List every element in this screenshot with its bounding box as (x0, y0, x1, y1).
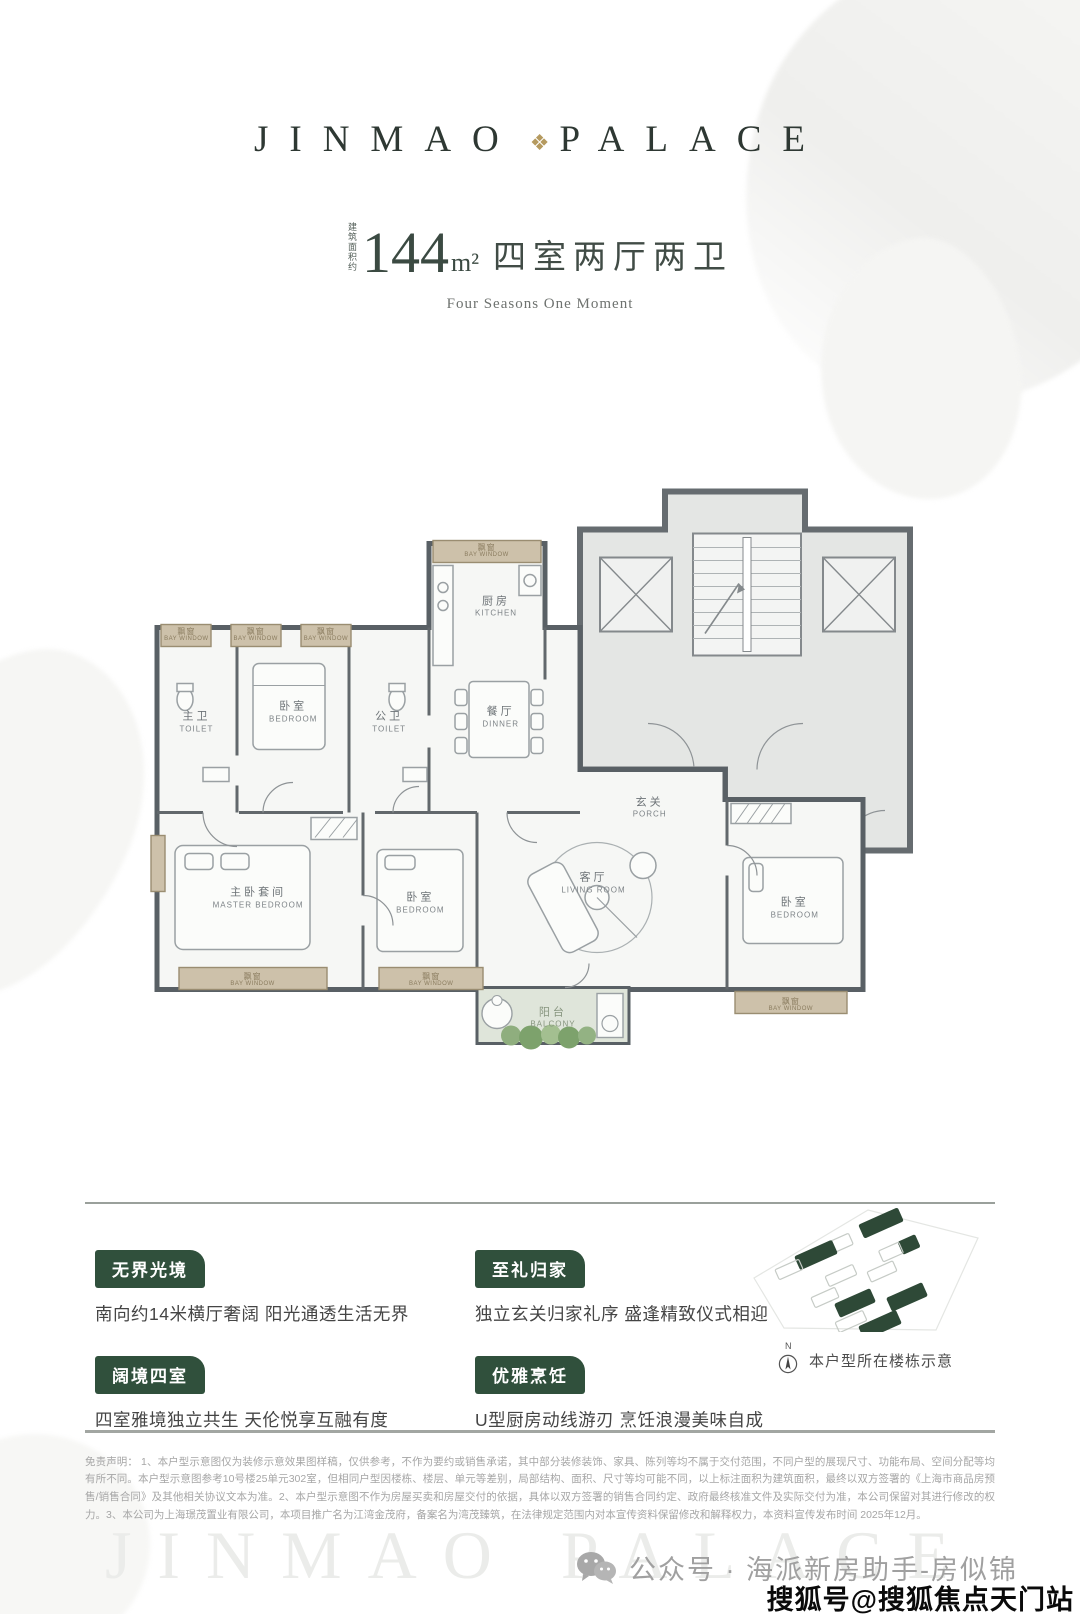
room-label-dinner: 餐厅DINNER (482, 706, 519, 729)
room-label-kitchen: 厨房KITCHEN (475, 595, 517, 618)
room-label-bay-window: 飘窗BAY WINDOW (409, 972, 453, 988)
area-prefix: 建筑面积约 (347, 222, 356, 272)
brand-left: JINMAO (254, 119, 520, 160)
compass-letter: N (785, 1341, 793, 1351)
site-blocks (775, 1208, 927, 1332)
site-caption: 本户型所在楼栋示意 (809, 1350, 953, 1371)
sohu-watermark: 搜狐号@搜狐焦点天门站 (767, 1578, 1074, 1614)
room-label-bay-window: 飘窗BAY WINDOW (464, 543, 508, 559)
room-label-bay-window: 飘窗BAY WINDOW (230, 972, 274, 988)
wechat-icon (575, 1550, 617, 1586)
site-caption-row: N 本户型所在楼栋示意 (740, 1343, 990, 1377)
feature-item: 无界光境 南向约14米横厅奢阔 阳光通透生活无界 (95, 1250, 475, 1326)
room-label-bedroom: 卧室BEDROOM (396, 892, 444, 915)
feature-desc: U型厨房动线游刃 烹饪浪漫美味自成 (475, 1407, 735, 1432)
subtitle: Four Seasons One Moment (0, 296, 1080, 313)
room-label-bay-window: 飘窗BAY WINDOW (164, 627, 208, 643)
room-label-toilet: 公卫TOILET (372, 711, 406, 734)
room-label-bedroom: 卧室BEDROOM (269, 701, 317, 724)
feature-tag: 无界光境 (95, 1250, 205, 1288)
brand-right: PALACE (560, 119, 827, 160)
feature-desc: 南向约14米横厅奢阔 阳光通透生活无界 (95, 1301, 475, 1326)
floor-plan-labels: 飘窗BAY WINDOW飘窗BAY WINDOW飘窗BAY WINDOW飘窗BA… (145, 466, 925, 1054)
divider-bottom (85, 1430, 995, 1433)
room-label-bay-window: 飘窗BAY WINDOW (769, 997, 813, 1013)
room-label-porch: 玄关PORCH (633, 796, 667, 819)
room-label-balcony: 阳台BALCONY (530, 1006, 575, 1029)
site-map: N 本户型所在楼栋示意 (740, 1204, 990, 1374)
layout-text: 四室两厅两卫 (493, 230, 733, 278)
disclaimer-text: 免责声明： 1、本户型示意图仅为装修示意效果图样稿，仅供参考，不作为要约或销售承… (85, 1454, 995, 1525)
feature-tag: 优雅烹饪 (475, 1356, 585, 1394)
site-map-svg (740, 1204, 990, 1332)
feature-tag: 阔境四室 (95, 1356, 205, 1394)
brand-emblem-icon: ❖ (530, 130, 550, 155)
feature-tag: 至礼归家 (475, 1250, 585, 1288)
page: JINMAO❖PALACE 建筑面积约 144 m² 四室两厅两卫 Four S… (0, 0, 1080, 1614)
room-label-master-bedroom: 主卧套间MASTER BEDROOM (213, 887, 304, 910)
compass-icon: N (777, 1343, 801, 1377)
room-label-toilet: 主卫TOILET (180, 711, 214, 734)
feature-desc: 四室雅境独立共生 天伦悦享互融有度 (95, 1407, 475, 1432)
feature-item: 至礼归家 独立玄关归家礼序 盛逢精致仪式相迎 (475, 1250, 735, 1326)
room-label-bay-window: 飘窗BAY WINDOW (234, 627, 278, 643)
feature-item: 优雅烹饪 U型厨房动线游刃 烹饪浪漫美味自成 (475, 1356, 735, 1432)
page-title: 建筑面积约 144 m² 四室两厅两卫 (0, 222, 1080, 282)
feature-desc: 独立玄关归家礼序 盛逢精致仪式相迎 (475, 1301, 735, 1326)
room-label-bay-window: 飘窗BAY WINDOW (304, 627, 348, 643)
room-label-living-room: 客厅LIVING ROOM (561, 872, 625, 895)
feature-item: 阔境四室 四室雅境独立共生 天伦悦享互融有度 (95, 1356, 475, 1432)
room-label-bedroom: 卧室BEDROOM (771, 897, 819, 920)
area-unit: m² (451, 248, 479, 278)
brand-header: JINMAO❖PALACE (0, 118, 1080, 161)
floor-plan: 飘窗BAY WINDOW飘窗BAY WINDOW飘窗BAY WINDOW飘窗BA… (145, 466, 925, 1054)
features-grid: 无界光境 南向约14米横厅奢阔 阳光通透生活无界 至礼归家 独立玄关归家礼序 盛… (95, 1250, 735, 1432)
area-value: 144 (362, 224, 449, 282)
